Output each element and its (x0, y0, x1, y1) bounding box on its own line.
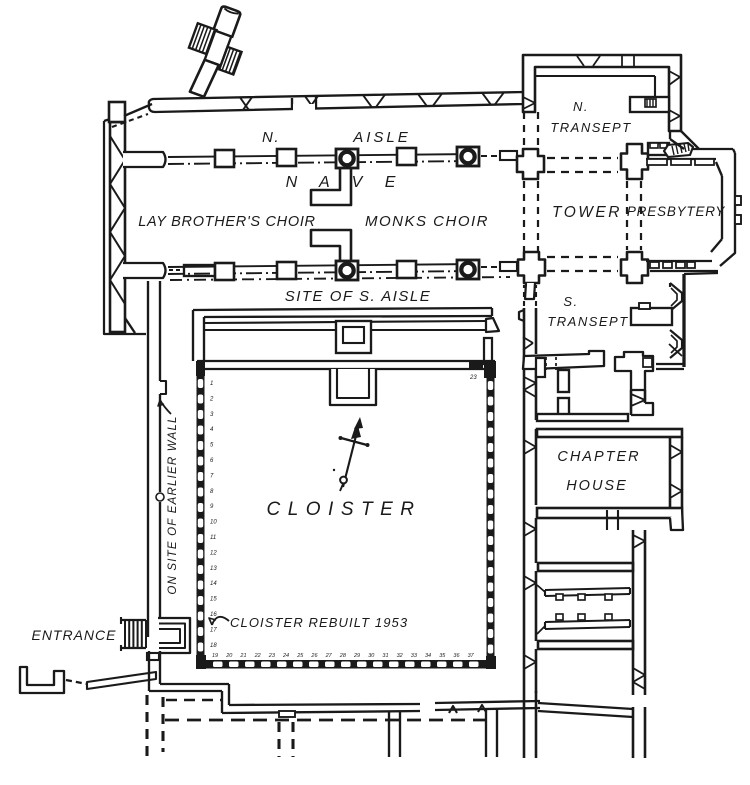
svg-text:33: 33 (411, 653, 418, 659)
svg-text:1: 1 (210, 381, 213, 387)
svg-text:ON SITE OF EARLIER WALL: ON SITE OF EARLIER WALL (167, 415, 179, 594)
svg-text:TOWER: TOWER (552, 204, 622, 221)
svg-text:N.: N. (573, 99, 589, 114)
svg-text:23: 23 (469, 375, 477, 381)
svg-text:31: 31 (382, 653, 388, 659)
svg-text:LAY BROTHER'S CHOIR: LAY BROTHER'S CHOIR (138, 214, 315, 230)
svg-text:28: 28 (339, 653, 347, 659)
svg-text:19: 19 (212, 653, 218, 659)
svg-text:TRANSEPT: TRANSEPT (547, 314, 628, 329)
svg-text:30: 30 (368, 653, 375, 659)
svg-text:CHAPTER: CHAPTER (557, 449, 640, 465)
svg-text:CLOISTER: CLOISTER (266, 499, 421, 520)
svg-text:17: 17 (210, 627, 217, 633)
svg-text:N.: N. (262, 129, 280, 146)
svg-text:37: 37 (468, 653, 475, 659)
svg-text:2: 2 (209, 396, 214, 402)
svg-text:MONKS CHOIR: MONKS CHOIR (365, 213, 489, 230)
svg-text:26: 26 (310, 653, 318, 659)
svg-text:22: 22 (254, 653, 261, 659)
svg-text:ENTRANCE: ENTRANCE (31, 627, 116, 643)
svg-text:25: 25 (296, 653, 304, 659)
svg-text:34: 34 (425, 653, 431, 659)
svg-text:13: 13 (210, 566, 217, 572)
svg-text:32: 32 (397, 653, 403, 659)
svg-text:S.: S. (563, 294, 578, 309)
svg-text:24: 24 (282, 653, 289, 659)
svg-text:29: 29 (353, 653, 360, 659)
svg-text:SITE OF S. AISLE: SITE OF S. AISLE (285, 288, 432, 305)
svg-text:23: 23 (268, 653, 276, 659)
svg-text:N A V E: N A V E (286, 174, 405, 191)
svg-text:21: 21 (239, 653, 246, 659)
svg-text:15: 15 (210, 597, 217, 603)
svg-text:12: 12 (210, 550, 217, 556)
svg-text:14: 14 (210, 581, 217, 587)
svg-text:AISLE: AISLE (352, 129, 411, 146)
svg-text:18: 18 (210, 643, 217, 649)
svg-text:HOUSE: HOUSE (566, 478, 628, 494)
svg-text:35: 35 (439, 653, 446, 659)
svg-text:CLOISTER REBUILT 1953: CLOISTER REBUILT 1953 (230, 615, 408, 630)
svg-text:10: 10 (210, 520, 217, 526)
svg-text:PRESBYTERY: PRESBYTERY (627, 204, 725, 219)
svg-text:TRANSEPT: TRANSEPT (550, 120, 631, 135)
svg-text:27: 27 (325, 653, 333, 659)
svg-text:11: 11 (210, 535, 216, 541)
svg-text:36: 36 (453, 653, 460, 659)
svg-text:20: 20 (225, 653, 233, 659)
